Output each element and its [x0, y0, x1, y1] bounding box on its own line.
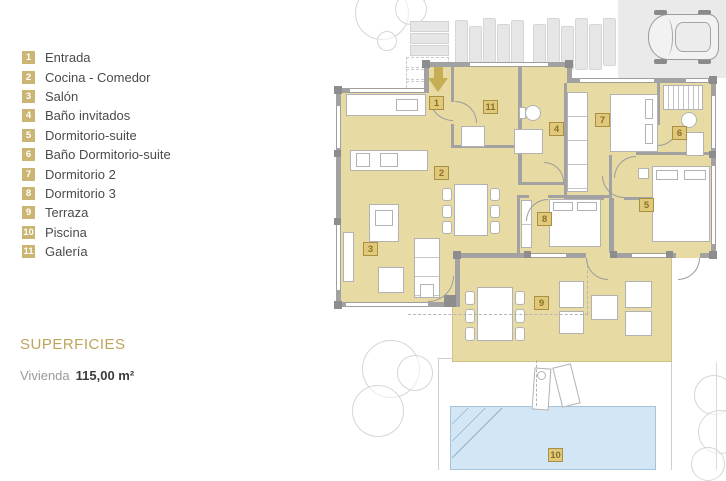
- wall-post: [610, 251, 617, 258]
- room-number-badge: 7: [595, 113, 610, 127]
- sink: [356, 153, 370, 167]
- lounger-head: [537, 371, 546, 380]
- legend-number-badge: 6: [22, 148, 35, 161]
- tree-icon: [352, 385, 404, 437]
- entry-step: [410, 33, 449, 44]
- window: [346, 302, 428, 307]
- chair: [490, 221, 500, 234]
- car-roof: [675, 22, 711, 52]
- door-arc: [678, 258, 700, 280]
- entry-step: [410, 21, 449, 32]
- window: [686, 78, 708, 83]
- legend-number-badge: 3: [22, 90, 35, 103]
- pillow: [645, 124, 653, 144]
- legend-label: Entrada: [45, 50, 91, 65]
- pillow: [684, 170, 706, 180]
- overhang-dashed-line: [536, 360, 537, 406]
- legend-list: 1Entrada2Cocina - Comedor3Salón4Baño inv…: [22, 48, 171, 261]
- tree-icon: [377, 31, 397, 51]
- legend-number-badge: 11: [22, 245, 35, 258]
- interior-wall: [517, 195, 520, 253]
- legend-item: 6Baño Dormitorio-suite: [22, 145, 171, 164]
- window: [470, 62, 548, 67]
- legend-label: Dormitorio 2: [45, 167, 116, 182]
- path-plank: [511, 20, 524, 68]
- room-number-badge: 5: [639, 198, 654, 212]
- wardrobe: [663, 85, 703, 110]
- legend-number-badge: 7: [22, 168, 35, 181]
- chair: [442, 188, 452, 201]
- floorplan-page: 1Entrada2Cocina - Comedor3Salón4Baño inv…: [0, 0, 726, 470]
- interior-wall: [609, 198, 614, 253]
- path-plank: [589, 24, 602, 70]
- superficies-line: Vivienda115,00 m²: [20, 368, 134, 383]
- legend-number-badge: 5: [22, 129, 35, 142]
- chair: [490, 205, 500, 218]
- legend-label: Salón: [45, 89, 78, 104]
- ottoman: [375, 210, 393, 226]
- room-number-badge: 3: [363, 242, 378, 256]
- legend-label: Terraza: [45, 205, 88, 220]
- chair: [515, 291, 525, 305]
- nightstand: [638, 168, 649, 179]
- legend-item: 8Dormitorio 3: [22, 184, 171, 203]
- wall-post: [666, 251, 673, 258]
- legend-label: Cocina - Comedor: [45, 70, 151, 85]
- entry-step: [410, 45, 449, 56]
- car-icon: [648, 10, 722, 64]
- tree-icon: [397, 355, 433, 391]
- toilet: [525, 105, 541, 121]
- wall-post: [453, 251, 461, 259]
- window: [711, 96, 716, 148]
- window: [336, 106, 341, 148]
- toilet-tank: [519, 107, 526, 119]
- room-number-badge: 2: [434, 166, 449, 180]
- overhang-dashed-line: [408, 314, 588, 315]
- room-number-badge: 1: [429, 96, 444, 110]
- legend-item: 1Entrada: [22, 48, 171, 67]
- window: [580, 78, 654, 83]
- entrance-arrow-icon: [428, 78, 448, 92]
- path-plank: [547, 18, 560, 68]
- chair: [465, 291, 475, 305]
- room-number-badge: 4: [549, 122, 564, 136]
- lounge-chair: [559, 281, 584, 308]
- garden-edge-line: [716, 362, 717, 470]
- interior-wall: [518, 182, 568, 185]
- room-number-badge: 10: [548, 448, 563, 462]
- superficies-area-value: 115,00 m²: [76, 368, 135, 383]
- chair: [490, 188, 500, 201]
- tree-icon: [694, 375, 726, 415]
- superficies-title: SUPERFICIES: [20, 336, 134, 353]
- legend-number-badge: 10: [22, 226, 35, 239]
- interior-wall: [548, 195, 612, 198]
- window: [711, 166, 716, 244]
- lounge-chair: [625, 281, 652, 308]
- legend-item: 7Dormitorio 2: [22, 164, 171, 183]
- pillow: [577, 202, 597, 211]
- wall-post: [709, 251, 717, 259]
- path-plank: [533, 24, 546, 66]
- room-number-badge: 8: [537, 212, 552, 226]
- room-number-badge: 9: [534, 296, 549, 310]
- pillow: [656, 170, 678, 180]
- wardrobe: [567, 92, 588, 192]
- legend-label: Baño Dormitorio-suite: [45, 147, 171, 162]
- wall-post: [565, 60, 573, 68]
- legend-item: 10Piscina: [22, 223, 171, 242]
- legend-number-badge: 9: [22, 206, 35, 219]
- legend-number-badge: 2: [22, 71, 35, 84]
- wall-post: [334, 150, 341, 157]
- armchair: [378, 267, 404, 293]
- kitchen-sink: [396, 99, 418, 111]
- interior-wall: [518, 67, 522, 185]
- path-plank: [483, 18, 496, 68]
- pillow: [553, 202, 573, 211]
- superficies-block: SUPERFICIES Vivienda115,00 m²: [20, 336, 134, 383]
- legend-label: Piscina: [45, 225, 87, 240]
- legend-number-badge: 1: [22, 51, 35, 64]
- overhang-dashed-line: [587, 260, 588, 314]
- chair: [515, 309, 525, 323]
- shower: [686, 132, 704, 156]
- bench: [461, 126, 485, 147]
- legend-label: Baño invitados: [45, 108, 130, 123]
- wall-post: [709, 151, 716, 158]
- pillow: [645, 99, 653, 119]
- legend-item: 5Dormitorio-suite: [22, 126, 171, 145]
- chair: [442, 205, 452, 218]
- window: [530, 253, 566, 258]
- dining-table: [454, 184, 488, 236]
- room-number-badge: 6: [672, 126, 687, 140]
- wall-post: [444, 295, 456, 307]
- legend-label: Dormitorio 3: [45, 186, 116, 201]
- superficies-area-label: Vivienda: [20, 368, 70, 383]
- path-plank: [603, 18, 616, 66]
- stove: [380, 153, 398, 167]
- lounge-chair: [625, 311, 652, 336]
- legend-item: 9Terraza: [22, 203, 171, 222]
- legend-item: 4Baño invitados: [22, 106, 171, 125]
- legend-item: 3Salón: [22, 87, 171, 106]
- room-number-badge: 11: [483, 100, 498, 114]
- wall-post: [334, 218, 341, 225]
- wall-post: [709, 76, 717, 84]
- legend-label: Dormitorio-suite: [45, 128, 137, 143]
- window: [350, 88, 424, 93]
- chair: [515, 327, 525, 341]
- chair: [442, 221, 452, 234]
- chair: [465, 309, 475, 323]
- shower: [514, 129, 543, 154]
- path-plank: [575, 18, 588, 70]
- legend-number-badge: 8: [22, 187, 35, 200]
- car-windshield: [662, 19, 673, 55]
- chair: [465, 327, 475, 341]
- wall-post: [422, 60, 430, 68]
- tv-unit: [343, 232, 354, 282]
- legend-item: 11Galería: [22, 242, 171, 261]
- wall-post: [524, 251, 531, 258]
- window: [632, 253, 666, 258]
- side-table: [591, 295, 618, 320]
- path-plank: [455, 20, 468, 68]
- legend-label: Galería: [45, 244, 88, 259]
- legend-item: 2Cocina - Comedor: [22, 67, 171, 86]
- window: [336, 224, 341, 290]
- wall-post: [334, 86, 342, 94]
- wall-post: [334, 301, 342, 309]
- legend-number-badge: 4: [22, 109, 35, 122]
- tree-icon: [691, 447, 725, 481]
